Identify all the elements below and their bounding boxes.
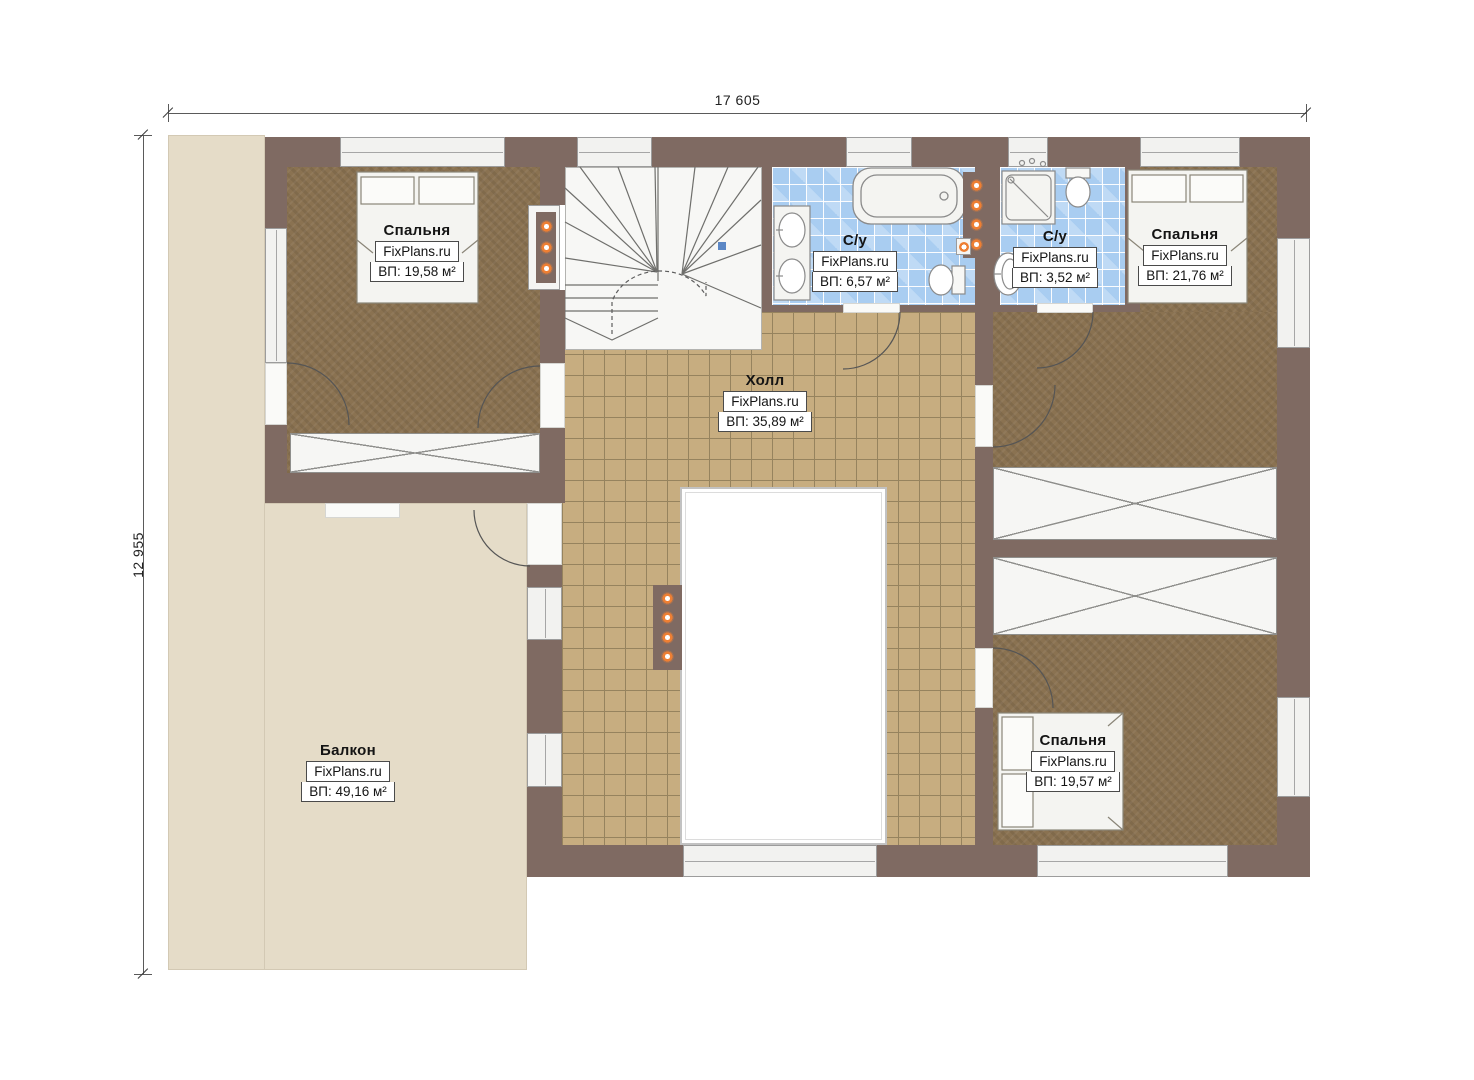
balcony-floor-main <box>265 503 527 970</box>
wardrobe-right-1 <box>993 467 1277 540</box>
wall-bedroom-left-east <box>540 290 565 363</box>
room-area: ВП: 21,76 м² <box>1138 266 1232 286</box>
window-hall-west-2 <box>527 733 562 787</box>
room-area: ВП: 35,89 м² <box>718 412 812 432</box>
wall-top <box>912 137 1008 167</box>
floor-opening-void <box>680 487 887 845</box>
wall-top <box>652 137 846 167</box>
wall-switch <box>956 238 971 255</box>
wall-bedroom-left-east <box>540 428 565 473</box>
spotlight-icon <box>661 592 674 605</box>
room-label-bathroom-small: С/у FixPlans.ru ВП: 3,52 м² <box>980 228 1130 288</box>
wall-hall-east <box>975 447 993 648</box>
door-opening-bathroom-small <box>1037 303 1093 313</box>
room-label-balcony: Балкон FixPlans.ru ВП: 49,16 м² <box>273 742 423 802</box>
balcony-step <box>325 503 400 518</box>
wall-right <box>1277 348 1310 697</box>
watermark: FixPlans.ru <box>1013 247 1097 268</box>
room-area: ВП: 49,16 м² <box>301 782 395 802</box>
balcony-door-opening-left <box>265 363 287 425</box>
wall-hall-west <box>527 787 562 845</box>
wall-bedroom-left-east <box>540 137 565 205</box>
room-name: Спальня <box>1040 732 1107 749</box>
window-top-stairs <box>577 137 652 167</box>
spotlight-panel-hall <box>653 585 682 670</box>
wall-right <box>1277 137 1310 238</box>
floor-plan-canvas: 17 605 12 955 <box>0 0 1474 1080</box>
wall-top <box>1048 137 1140 167</box>
tv-lighting-panel-bedroom-left <box>528 205 560 290</box>
watermark: FixPlans.ru <box>1031 751 1115 772</box>
dimension-height-label: 12 955 <box>130 525 146 585</box>
window-bottom-hall <box>683 845 877 877</box>
wall-hall-west <box>527 565 562 587</box>
wall-hall-west <box>527 640 562 733</box>
wall-wardrobe-divider <box>993 540 1277 557</box>
watermark: FixPlans.ru <box>375 241 459 262</box>
room-name: С/у <box>1043 228 1067 245</box>
dimension-width-label: 17 605 <box>168 92 1307 108</box>
room-name: Холл <box>746 372 785 389</box>
window-top-bathroom-large <box>846 137 912 167</box>
window-bottom-bedroom <box>1037 845 1228 877</box>
spotlight-strip <box>536 212 556 283</box>
window-top-bedroom-left <box>340 137 505 167</box>
wall-bedroom-left-south <box>265 473 565 503</box>
watermark: FixPlans.ru <box>306 761 390 782</box>
window-left-bedroom <box>265 228 287 363</box>
room-label-bedroom-top-left: Спальня FixPlans.ru ВП: 19,58 м² <box>342 222 492 282</box>
door-opening-bedroom-bottom <box>975 648 993 708</box>
window-top-bedroom-right <box>1140 137 1240 167</box>
spotlight-icon <box>540 241 553 254</box>
spotlight-icon <box>959 242 969 252</box>
bedroom-top-left-floor <box>287 167 540 473</box>
room-name: Балкон <box>320 742 376 759</box>
wall-left <box>265 137 287 228</box>
room-label-bathroom-large: С/у FixPlans.ru ВП: 6,57 м² <box>780 232 930 292</box>
room-area: ВП: 3,52 м² <box>1012 268 1098 288</box>
watermark: FixPlans.ru <box>813 251 897 272</box>
watermark: FixPlans.ru <box>723 391 807 412</box>
spotlight-icon <box>661 631 674 644</box>
wall-hall-east <box>975 708 993 845</box>
door-opening-bedroom-left <box>540 363 565 428</box>
wall-stairs-bathroom <box>762 167 772 312</box>
wardrobe-bedroom-left <box>290 433 540 473</box>
room-name: Спальня <box>384 222 451 239</box>
spotlight-icon <box>540 262 553 275</box>
wall-bathrooms-south <box>900 305 1037 312</box>
window-top-bathroom-small <box>1008 137 1048 167</box>
spotlight-icon <box>661 650 674 663</box>
room-name: С/у <box>843 232 867 249</box>
room-label-bedroom-bottom-right: Спальня FixPlans.ru ВП: 19,57 м² <box>998 732 1148 792</box>
wall-bathrooms-south <box>1093 305 1125 312</box>
window-right-bedroom-bottom <box>1277 697 1310 797</box>
balcony-door-opening-hall <box>527 503 562 565</box>
door-opening-bathroom-large <box>843 303 900 313</box>
wall-bottom <box>527 845 683 877</box>
room-label-bedroom-top-right: Спальня FixPlans.ru ВП: 21,76 м² <box>1110 226 1260 286</box>
wardrobe-right-2 <box>993 557 1277 635</box>
room-label-hall: Холл FixPlans.ru ВП: 35,89 м² <box>690 372 840 432</box>
window-right-bedroom-top <box>1277 238 1310 348</box>
room-area: ВП: 19,58 м² <box>370 262 464 282</box>
spotlight-icon <box>540 220 553 233</box>
wall-bathrooms-south <box>772 305 843 312</box>
balcony-floor-strip <box>168 135 265 970</box>
spotlight-icon <box>661 611 674 624</box>
room-name: Спальня <box>1152 226 1219 243</box>
wall-bottom <box>877 845 1037 877</box>
window-hall-west-1 <box>527 587 562 640</box>
staircase-area <box>565 167 762 350</box>
spotlight-icon <box>970 199 983 212</box>
watermark: FixPlans.ru <box>1143 245 1227 266</box>
dimension-line-top <box>168 113 1307 114</box>
wall-hall-east <box>975 312 993 385</box>
room-area: ВП: 19,57 м² <box>1026 772 1120 792</box>
bedroom-top-right-floor-lower <box>993 312 1277 467</box>
door-opening-bedroom-right <box>975 385 993 447</box>
spotlight-icon <box>970 179 983 192</box>
wall-bottom <box>1228 845 1310 877</box>
room-area: ВП: 6,57 м² <box>812 272 898 292</box>
